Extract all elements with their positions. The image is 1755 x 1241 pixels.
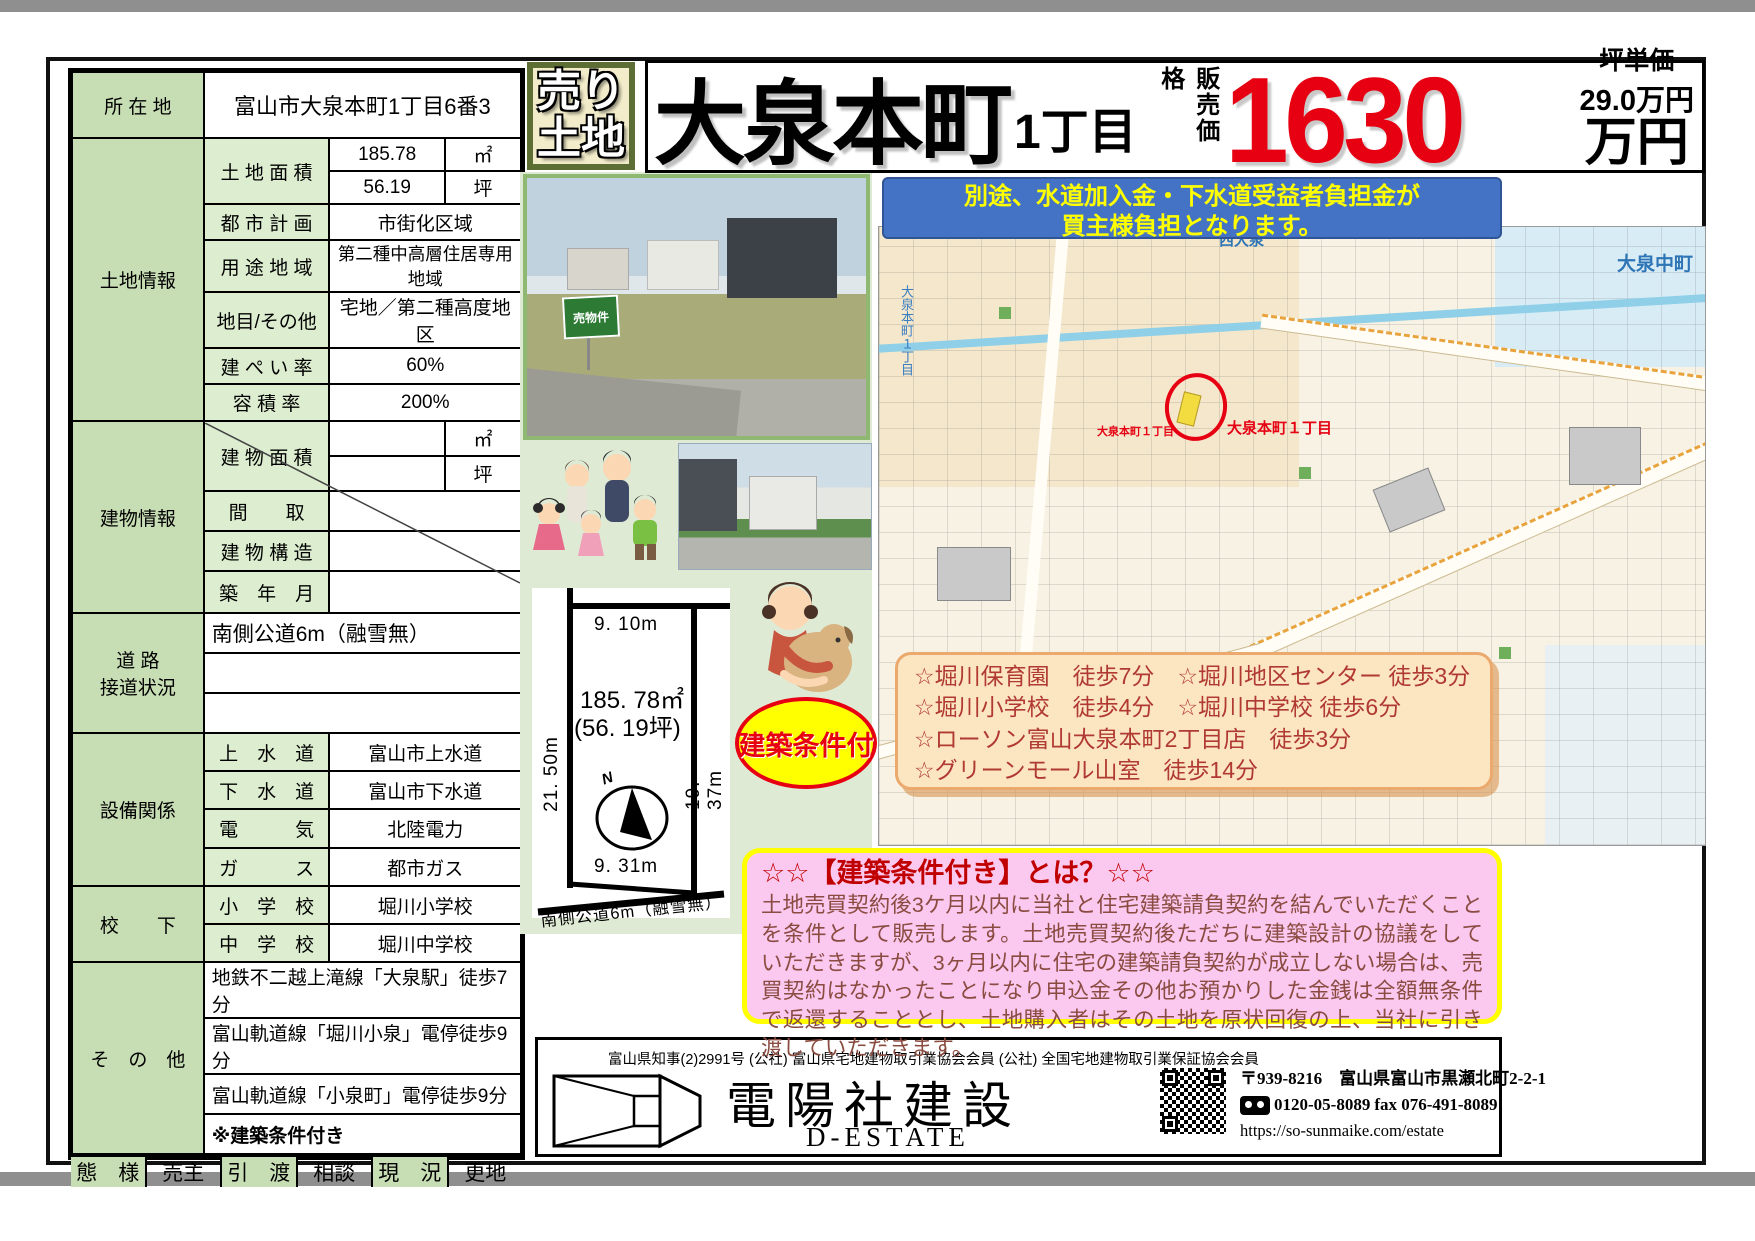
condition-body: 土地売買契約後3ケ月以内に当社と住宅建築請負契約を結んでいただくことを条件として…: [761, 891, 1483, 1063]
building-section-label: 建物情報: [72, 421, 204, 613]
school-section-label: 校 下: [72, 886, 204, 962]
lot-diagram: 9. 10m 185. 78㎡ (56. 19坪) 21. 50m 19. 37…: [532, 588, 730, 918]
photo-land-road: [523, 366, 741, 440]
photo-land-house-dark: [727, 218, 837, 298]
property-chome: 1丁目: [1014, 92, 1137, 162]
zoning-value: 第二種中高層住居専用地域: [329, 240, 521, 292]
photo-street-building: [679, 459, 737, 531]
condition-badge: 建築条件付: [735, 697, 877, 789]
unit-price-block: 坪単価 29.0万円 万円: [1580, 41, 1694, 170]
built-value: [329, 571, 521, 613]
map-park-1: [999, 307, 1011, 319]
electricity-value: 北陸電力: [329, 809, 521, 848]
price-label: 販売価格: [1153, 66, 1223, 168]
top-edge-strip: [0, 0, 1755, 12]
sewer-label: 下 水 道: [204, 771, 330, 809]
building-unit-tsubo: 坪: [445, 456, 521, 491]
qr-code: [1160, 1068, 1226, 1134]
category-value: 宅地／第二種高度地区: [329, 292, 521, 348]
company-brand: D-ESTATE: [806, 1122, 970, 1153]
location-label: 所 在 地: [72, 72, 204, 138]
electricity-label: 電 気: [204, 809, 330, 848]
photo-street-house: [749, 476, 817, 530]
elementary-value: 堀川小学校: [329, 886, 521, 924]
road-empty-1: [204, 653, 521, 693]
lot-top-dim: 9. 10m: [594, 614, 658, 636]
map-building-4: [1569, 427, 1641, 485]
sewer-value: 富山市下水道: [329, 771, 521, 809]
current-value: 更地: [449, 1157, 523, 1187]
other-line-2: 富山軌道線「堀川小泉」電停徒歩9分: [204, 1018, 521, 1074]
photo-land: 売物件: [523, 174, 870, 440]
road-section-label: 道 路 接道状況: [72, 613, 204, 733]
coverage-label: 建 ぺ い 率: [204, 348, 330, 384]
map-building-1: [937, 547, 1011, 601]
other-section-label: そ の 他: [72, 962, 204, 1154]
structure-label: 建 物 構 造: [204, 531, 330, 571]
photo-land-house-white: [647, 240, 719, 290]
sale-land-badge: 売り 土地: [527, 62, 635, 170]
far-value: 200%: [329, 384, 521, 421]
elementary-label: 小 学 校: [204, 886, 330, 924]
road-value: 南側公道6m（融雪無）: [204, 613, 521, 653]
land-section-label: 土地情報: [72, 138, 204, 421]
far-label: 容 積 率: [204, 384, 330, 421]
gas-value: 都市ガス: [329, 848, 521, 886]
property-name: 大泉本町: [654, 80, 1010, 170]
tsubo-unit-price: 29.0万円: [1580, 77, 1694, 119]
land-area-tsubo: 56.19: [329, 171, 445, 204]
handover-label: 引 渡: [222, 1157, 298, 1187]
gas-label: ガ ス: [204, 848, 330, 886]
notice-banner: 別途、水道加入金・下水道受益者負担金が 買主様負担となります。: [882, 177, 1502, 239]
unit-m2: ㎡: [445, 138, 521, 171]
address-block: 〒939-8216 富山県富山市黒瀬北町2-2-1 0120-05-8089 f…: [1240, 1064, 1502, 1141]
map-park-3: [1499, 647, 1511, 659]
phone-number: 0120-05-8089: [1274, 1095, 1370, 1115]
sale-badge-line2: 土地: [537, 116, 625, 163]
access-line-2: ☆堀川小学校 徒歩4分 ☆堀川中学校 徒歩6分: [914, 692, 1474, 723]
map-label-site: 大泉本町１丁目: [1227, 417, 1332, 438]
building-area-tsubo: [329, 456, 445, 491]
madori-label: 間 取: [204, 491, 330, 531]
qr-finder-bl: [1162, 1116, 1178, 1132]
mode-label: 態 様: [71, 1157, 147, 1187]
water-label: 上 水 道: [204, 733, 330, 771]
condition-box: ☆☆【建築条件付き】とは？☆☆ 土地売買契約後3ケ月以内に当社と住宅建築請負契約…: [742, 848, 1502, 1024]
built-label: 築 年 月: [204, 571, 330, 613]
junior-value: 堀川中学校: [329, 924, 521, 962]
notice-line1: 別途、水道加入金・下水道受益者負担金が: [884, 182, 1500, 212]
junior-label: 中 学 校: [204, 924, 330, 962]
access-line-3: ☆ローソン富山大泉本町2丁目店 徒歩3分: [914, 724, 1474, 755]
condition-heading: ☆☆【建築条件付き】とは？☆☆: [761, 857, 1483, 889]
zoning-label: 用 途 地 域: [204, 240, 330, 292]
postal-address: 〒939-8216 富山県富山市黒瀬北町2-2-1: [1240, 1064, 1502, 1089]
property-table: 所 在 地 富山市大泉本町1丁目6番3 土地情報 土 地 面 積 185.78 …: [68, 68, 525, 1160]
madori-value: [329, 491, 521, 531]
condition-badge-label: 建築条件付: [739, 724, 874, 763]
category-label: 地目/その他: [204, 292, 330, 348]
freedial-phone-icon: [1240, 1096, 1270, 1115]
access-line-4: ☆グリーンモール山室 徒歩14分: [914, 755, 1474, 786]
website-url: https://so-sunmaike.com/estate: [1240, 1121, 1502, 1141]
land-area-m2: 185.78: [329, 138, 445, 171]
building-area-m2: [329, 421, 445, 456]
photo-land-sign-pole: [587, 334, 590, 370]
status-row: 態 様 売主 引 渡 相談 現 況 更地: [71, 1155, 522, 1187]
other-line-3: 富山軌道線「小泉町」電停徒歩9分: [204, 1074, 521, 1114]
access-box: ☆堀川保育園 徒歩7分 ☆堀川地区センター 徒歩3分 ☆堀川小学校 徒歩4分 ☆…: [895, 652, 1493, 790]
tsubo-unit-label: 坪単価: [1580, 41, 1694, 77]
map-park-2: [1299, 467, 1311, 479]
utilities-section-label: 設備関係: [72, 733, 204, 886]
city-plan-label: 都 市 計 画: [204, 204, 330, 240]
photo-land-house-far: [567, 248, 629, 290]
family-illustration: [525, 446, 677, 568]
for-sale-sign: 売物件: [562, 295, 620, 340]
water-value: 富山市上水道: [329, 733, 521, 771]
map-label-site-small: 大泉本町１丁目: [1097, 423, 1174, 439]
map-label-vertical: 大泉本町１丁目: [897, 285, 916, 376]
access-line-1: ☆堀川保育園 徒歩7分 ☆堀川地区センター 徒歩3分: [914, 661, 1474, 692]
structure-value: [329, 531, 521, 571]
qr-finder-tl: [1162, 1070, 1178, 1086]
mode-value: 売主: [147, 1157, 223, 1187]
price-value: 1630: [1225, 70, 1461, 170]
road-empty-2: [204, 693, 521, 733]
company-logo-icon: [548, 1068, 718, 1154]
other-line-4: ※建築条件付き: [204, 1114, 521, 1154]
fax-number: fax 076-491-8089: [1374, 1095, 1497, 1115]
building-unit-m2: ㎡: [445, 421, 521, 456]
unit-tsubo: 坪: [445, 171, 521, 204]
building-area-label: 建 物 面 積: [204, 421, 330, 491]
girl-dog-illustration: [744, 578, 860, 714]
coverage-value: 60%: [329, 348, 521, 384]
land-area-label: 土 地 面 積: [204, 138, 330, 204]
city-plan-value: 市街化区域: [329, 204, 521, 240]
lot-bottom-dim: 9. 31m: [594, 856, 658, 878]
qr-finder-tr: [1208, 1070, 1224, 1086]
current-label: 現 況: [373, 1157, 449, 1187]
sale-badge-line1: 売り: [537, 69, 625, 116]
phone-line: 0120-05-8089 fax 076-491-8089: [1240, 1095, 1502, 1115]
lot-left-dim: 21. 50m: [541, 736, 563, 812]
photo-street: [678, 443, 872, 570]
title-box: 大泉本町 1丁目 販売価格 1630 坪単価 29.0万円 万円: [645, 60, 1705, 173]
map-label-oizumi-nakamachi: 大泉中町: [1617, 249, 1693, 276]
flyer-page: 所 在 地 富山市大泉本町1丁目6番3 土地情報 土 地 面 積 185.78 …: [0, 0, 1755, 1241]
location-value: 富山市大泉本町1丁目6番3: [204, 72, 521, 138]
notice-line2: 買主様負担となります。: [884, 212, 1500, 242]
other-line-1: 地鉄不二越上滝線「大泉駅」徒歩7分: [204, 962, 521, 1018]
handover-value: 相談: [298, 1157, 374, 1187]
lot-area-tsubo: (56. 19坪): [574, 708, 681, 743]
price-unit: 万円: [1580, 119, 1694, 168]
lot-right-dim: 19. 37m: [683, 760, 727, 810]
